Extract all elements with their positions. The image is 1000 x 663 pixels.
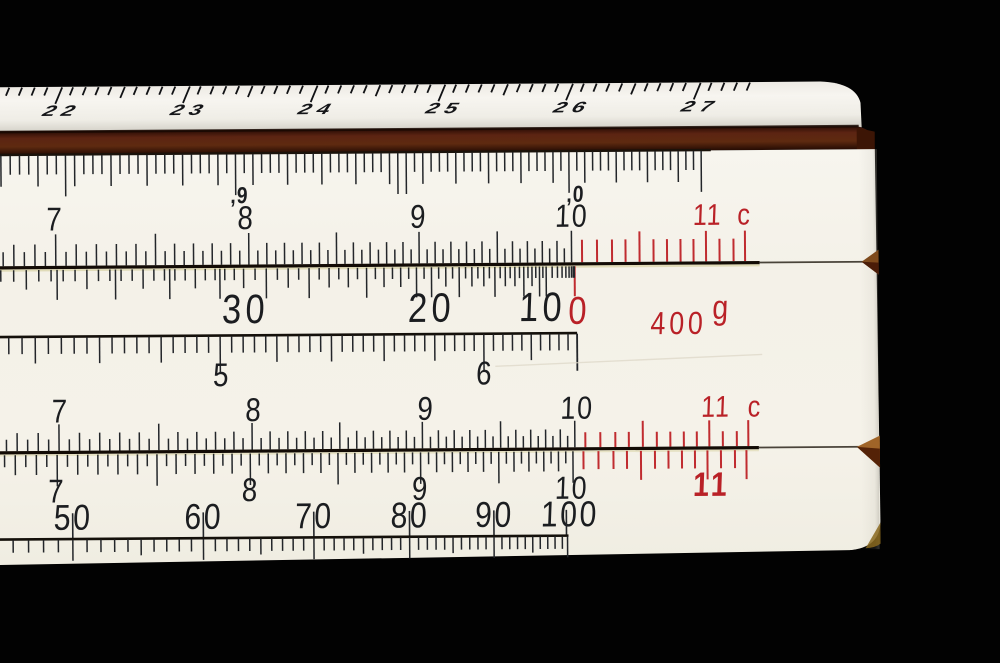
svg-text:30: 30 (221, 287, 269, 333)
svg-text:11: 11 (701, 390, 732, 424)
svg-text:400: 400 (650, 306, 707, 342)
svg-text:0: 0 (568, 288, 588, 333)
svg-text:10: 10 (554, 199, 589, 235)
svg-text:5: 5 (212, 357, 229, 394)
svg-text:100: 100 (540, 495, 599, 535)
svg-text:8: 8 (237, 200, 254, 237)
svg-text:7: 7 (45, 201, 62, 238)
svg-text:c: c (737, 197, 751, 231)
svg-text:8: 8 (245, 392, 262, 429)
svg-text:11: 11 (693, 465, 731, 503)
svg-text:6: 6 (475, 355, 492, 392)
svg-text:g: g (712, 288, 729, 326)
svg-text:c: c (747, 389, 761, 423)
svg-text:9: 9 (409, 199, 426, 236)
svg-text:11: 11 (692, 198, 723, 232)
svg-text:10: 10 (518, 285, 566, 331)
svg-text:10: 10 (560, 391, 595, 427)
svg-text:9: 9 (417, 391, 434, 428)
svg-text:8: 8 (241, 472, 258, 509)
svg-text:20: 20 (407, 286, 455, 332)
